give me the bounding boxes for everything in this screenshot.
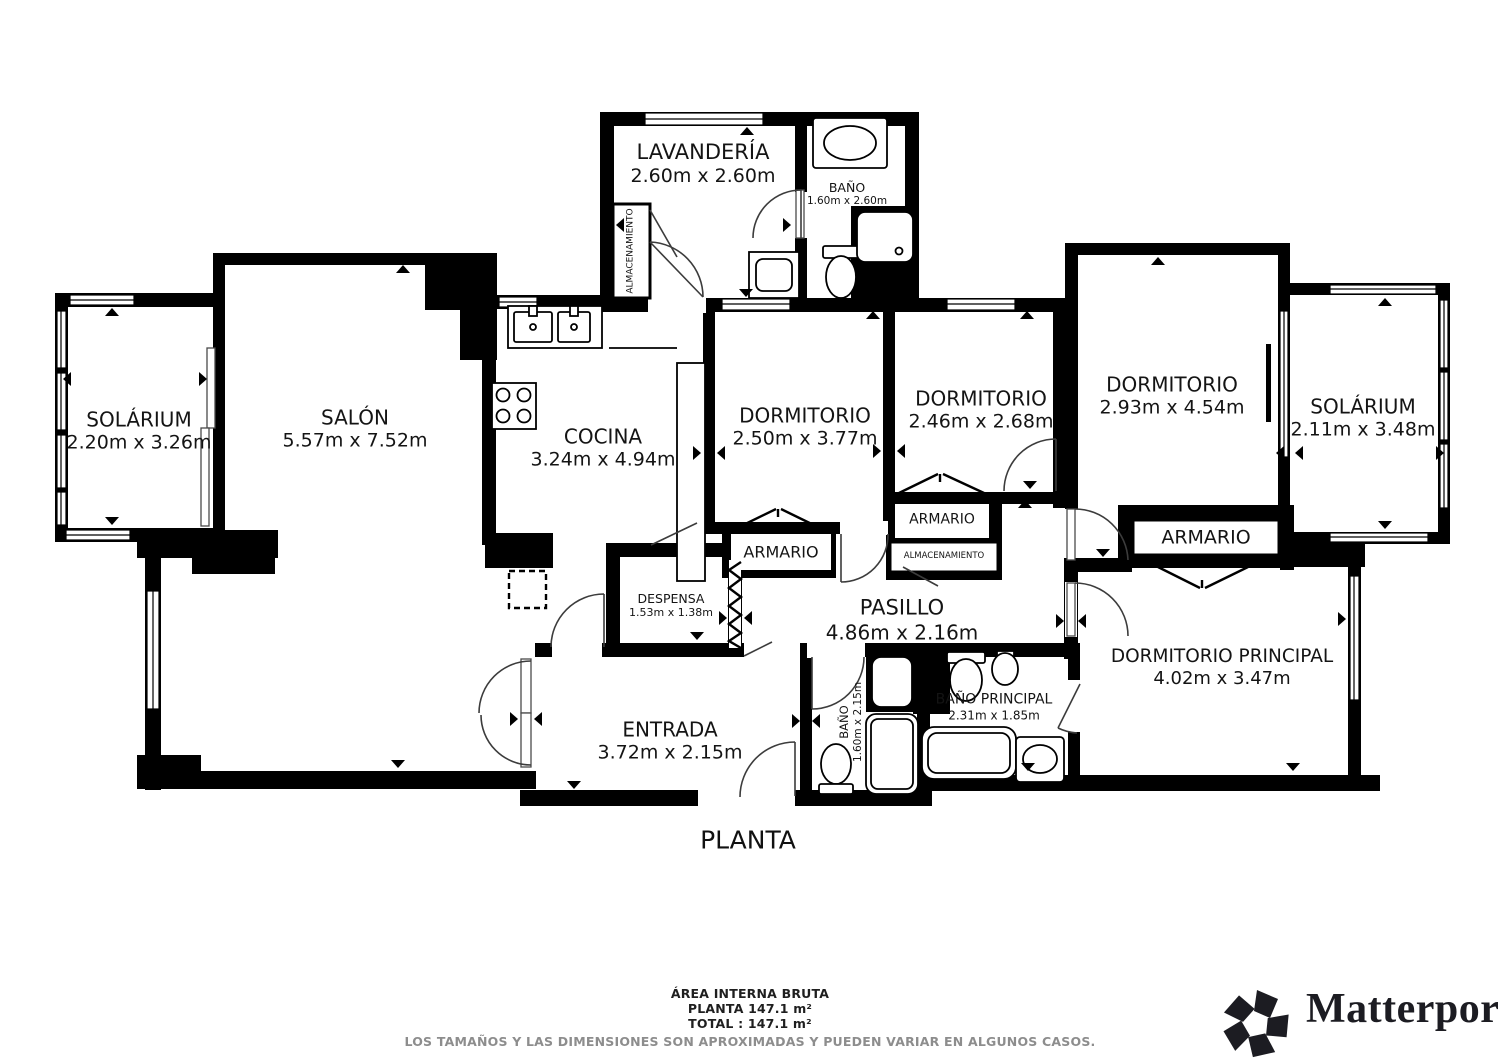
room-name: DESPENSA <box>629 591 713 606</box>
floor-plan-page: LAVANDERÍA 2.60m x 2.60m BAÑO 1.60m x 2.… <box>0 0 1500 1061</box>
zigzag-partition <box>729 560 741 648</box>
room-dims: 2.50m x 3.77m <box>733 428 878 451</box>
kitchen-counter <box>677 363 705 581</box>
room-label-almacenamiento-pasillo: ALMACENAMIENTO <box>904 551 984 561</box>
room-name: BAÑO PRINCIPAL <box>936 691 1053 708</box>
room-name: DORMITORIO PRINCIPAL <box>1111 646 1333 668</box>
room-label-bano-principal: BAÑO PRINCIPAL 2.31m x 1.85m <box>936 691 1053 722</box>
plan-title: PLANTA <box>700 826 796 855</box>
room-dims: 2.60m x 2.60m <box>631 165 776 188</box>
stove <box>492 383 536 429</box>
room-label-lavanderia: LAVANDERÍA 2.60m x 2.60m <box>631 140 776 188</box>
washing-machine <box>749 252 799 298</box>
room-dims: 3.72m x 2.15m <box>598 742 743 765</box>
room-dims: 2.93m x 4.54m <box>1100 397 1245 420</box>
room-dims: 4.02m x 3.47m <box>1111 668 1333 690</box>
logo-wordmark: Matterport <box>1306 986 1500 1032</box>
room-label-cocina: COCINA 3.24m x 4.94m <box>531 425 676 472</box>
room-name: ENTRADA <box>598 718 743 742</box>
room-dims: 1.53m x 1.38m <box>629 606 713 619</box>
footer-disclaimer: LOS TAMAÑOS Y LAS DIMENSIONES SON APROXI… <box>0 1034 1500 1049</box>
room-name: BAÑO <box>807 180 887 195</box>
room-label-despensa: DESPENSA 1.53m x 1.38m <box>629 591 713 619</box>
room-label-dormitorio-1: DORMITORIO 2.50m x 3.77m <box>733 404 878 451</box>
room-label-armario-3: ARMARIO <box>1161 527 1250 550</box>
room-name: SALÓN <box>283 406 428 430</box>
room-dims: 3.24m x 4.94m <box>531 449 676 472</box>
room-label-dormitorio-2: DORMITORIO 2.46m x 2.68m <box>909 387 1054 434</box>
room-name: DORMITORIO <box>1100 373 1245 397</box>
bath-small-fixtures <box>819 650 918 794</box>
room-name: SOLÁRIUM <box>67 408 212 432</box>
kitchen-sink <box>508 306 602 348</box>
dashed-reserved-square <box>509 571 546 608</box>
room-name: BAÑO <box>838 682 852 762</box>
room-label-salon: SALÓN 5.57m x 7.52m <box>283 406 428 453</box>
walls-layer <box>55 112 1450 806</box>
room-label-dormitorio-3: DORMITORIO 2.93m x 4.54m <box>1100 373 1245 420</box>
room-dims: 4.86m x 2.16m <box>826 621 979 645</box>
room-label-bano-top: BAÑO 1.60m x 2.60m <box>807 180 887 208</box>
room-label-almacenamiento-lavanderia: ALMACENAMIENTO <box>626 208 637 293</box>
room-dims: 5.57m x 7.52m <box>283 430 428 453</box>
room-name: SOLÁRIUM <box>1291 395 1436 419</box>
room-name: ARMARIO <box>743 542 818 561</box>
room-name: COCINA <box>531 425 676 449</box>
room-label-armario-2: ARMARIO <box>909 512 975 529</box>
room-dims: 2.46m x 2.68m <box>909 411 1054 434</box>
room-label-solarium-izq: SOLÁRIUM 2.20m x 3.26m <box>67 408 212 455</box>
matterport-logo-text: Matterport® <box>1306 985 1500 1033</box>
room-name: ARMARIO <box>1161 527 1250 550</box>
room-label-armario-1: ARMARIO <box>743 542 818 561</box>
room-name: DORMITORIO <box>733 404 878 428</box>
room-name: LAVANDERÍA <box>631 140 776 165</box>
room-dims: 2.11m x 3.48m <box>1291 419 1436 442</box>
room-name: PASILLO <box>826 595 979 620</box>
room-dims: 1.60m x 2.15m <box>852 682 865 762</box>
shower-tray <box>857 212 913 262</box>
room-dims: 1.60m x 2.60m <box>807 195 887 208</box>
room-name: ARMARIO <box>909 512 975 529</box>
room-dims: 2.31m x 1.85m <box>936 708 1053 722</box>
room-name: DORMITORIO <box>909 387 1054 411</box>
room-name: ALMACENAMIENTO <box>904 551 984 561</box>
room-label-solarium-der: SOLÁRIUM 2.11m x 3.48m <box>1291 395 1436 442</box>
matterport-logo: Matterport® <box>1218 985 1500 1033</box>
room-dims: 2.20m x 3.26m <box>67 432 212 455</box>
room-label-bano-pasillo: BAÑO 1.60m x 2.15m <box>838 682 864 762</box>
room-label-dormitorio-principal: DORMITORIO PRINCIPAL 4.02m x 3.47m <box>1111 646 1333 690</box>
room-label-entrada: ENTRADA 3.72m x 2.15m <box>598 718 743 765</box>
room-label-pasillo: PASILLO 4.86m x 2.16m <box>826 595 979 644</box>
room-name: ALMACENAMIENTO <box>626 208 637 293</box>
balcony-door-bar <box>1266 344 1271 422</box>
